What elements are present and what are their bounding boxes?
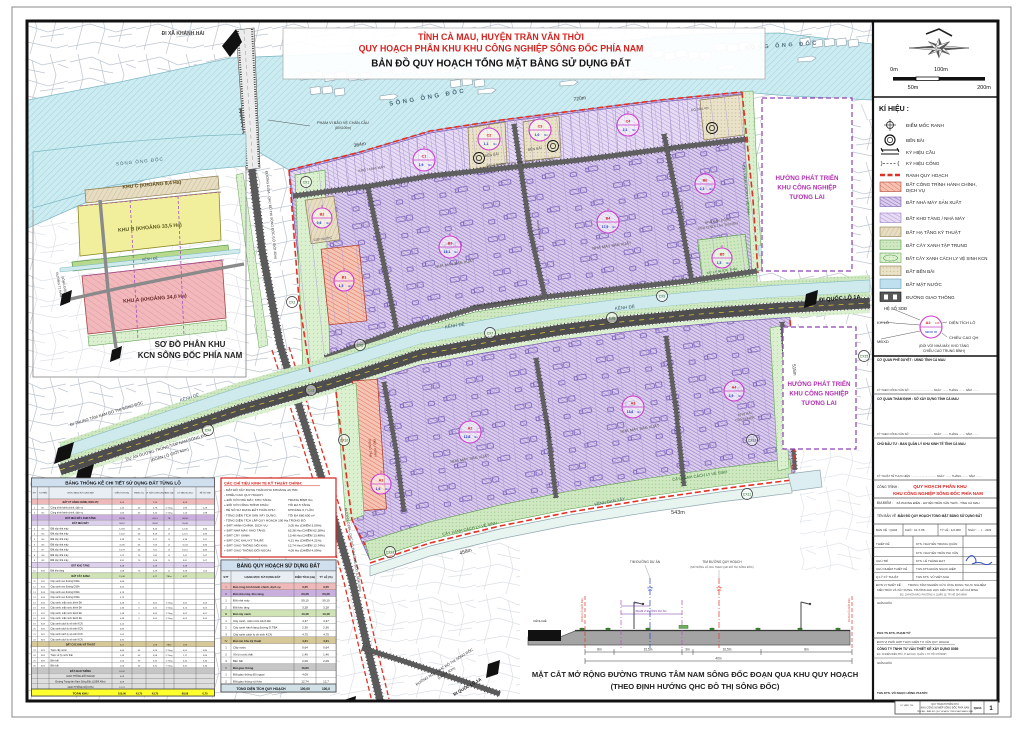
svg-text:KHU CÔNG NGHIỆP SÔNG ĐỐC PHÍA: KHU CÔNG NGHIỆP SÔNG ĐỐC PHÍA NAM [893,491,983,496]
svg-text:0,64: 0,64 [302,646,308,650]
svg-text:Cây xanh, mặt nước kênh Đê: Cây xanh, mặt nước kênh Đê [51,617,83,620]
svg-text:BẢNG QUY HOẠCH SỬ DỤNG ĐẤT: BẢNG QUY HOẠCH SỬ DỤNG ĐẤT [237,563,320,570]
svg-text:TỈNH CÀ MAU, HUYỆN TRẦN VĂN TH: TỈNH CÀ MAU, HUYỆN TRẦN VĂN THỜI [418,31,584,42]
svg-text:A1: A1 [379,479,384,483]
svg-text:TỔNG DIỆN TÍCH QUY HOẠCH: TỔNG DIỆN TÍCH QUY HOẠCH [236,686,286,691]
svg-text:1 Tầng: 1 Tầng [166,601,174,604]
svg-text:13,48: 13,48 [301,612,309,616]
svg-text:3m: 3m [685,648,690,652]
svg-text:KCN SÔNG ĐỐC PHÍA NAM: KCN SÔNG ĐỐC PHÍA NAM [138,350,243,360]
svg-text:TỶ LỆ : 1/2.000: TỶ LỆ : 1/2.000 [940,527,961,532]
svg-text:TOÀN KHU: TOÀN KHU [73,691,89,696]
svg-text:BẢN ĐỒ QUY HOẠCH TỔNG MẶT BẰNG: BẢN ĐỒ QUY HOẠCH TỔNG MẶT BẰNG SỬ DỤNG Đ… [371,58,630,70]
svg-text:TÊN BĐ : BẢN ĐỒ QUY HOẠCH TỔNG: TÊN BĐ : BẢN ĐỒ QUY HOẠCH TỔNG MẶT BẰNG … [917,710,974,713]
svg-text:1,9: 1,9 [419,163,424,167]
svg-text:3,9: 3,9 [729,394,734,398]
svg-text:B2: B2 [320,213,325,217]
svg-text:B5: B5 [720,253,725,257]
svg-text:17,9: 17,9 [602,225,609,229]
svg-text:13,48: 13,48 [119,576,125,578]
svg-text:Cây xanh hành lang đường D.TBA: Cây xanh hành lang đường D.TBA [233,626,278,630]
svg-text:CX11: CX11 [743,493,751,497]
svg-text:1,0: 1,0 [535,133,540,137]
svg-text:3,05: 3,05 [302,585,308,589]
svg-text:10,51: 10,51 [182,550,188,552]
svg-text:Đất xây nhà máy: Đất xây nhà máy [51,543,70,546]
svg-text:10,5m: 10,5m [723,648,732,652]
svg-text:KHU CÔNG NGHIỆP: KHU CÔNG NGHIỆP [777,184,836,192]
svg-text:STT: STT [223,575,229,579]
svg-text:1,6: 1,6 [376,487,381,491]
svg-text:Q.LÝ KỸ THUẬT: Q.LÝ KỸ THUẬT [876,574,899,579]
svg-text:0,64: 0,64 [323,646,329,650]
svg-text:CX3: CX3 [308,389,315,393]
svg-text:KÝ HIỆU TM:: KÝ HIỆU TM: [900,704,913,707]
svg-text:B3: B3 [448,242,453,246]
svg-text:3,8: 3,8 [935,321,940,325]
svg-text:16,02: 16,02 [119,671,125,673]
svg-text:KHU CÔNG NGHIỆP: KHU CÔNG NGHIỆP [789,390,848,398]
svg-text:+ ĐỐI VỚI NHÀ MÁY, KHO TÀNG:: + ĐỐI VỚI NHÀ MÁY, KHO TÀNG: [224,497,272,502]
svg-text:GIAO THÔNG NỘI KHU: GIAO THÔNG NỘI KHU [68,686,94,689]
svg-text:BẾN BÃI: BẾN BÃI [906,137,924,143]
svg-text:1,46: 1,46 [323,652,329,656]
svg-text:⚝: ⚝ [647,585,653,592]
svg-text:2,09: 2,09 [323,659,329,663]
svg-text:- TỔNG DIỆN TÍCH LẬP QUY HOẠCH: - TỔNG DIỆN TÍCH LẬP QUY HOẠCH 100 Ha TR… [224,517,307,522]
svg-text:ĐI XÃ KHÁNH HẢI: ĐI XÃ KHÁNH HẢI [162,30,205,37]
svg-text:TỶ LỆ (%): TỶ LỆ (%) [319,574,332,579]
svg-text:GIAO THÔNG ĐỐI NGOẠI: GIAO THÔNG ĐỐI NGOẠI [66,675,95,678]
svg-text:CX1: CX1 [303,181,310,185]
svg-text:9m: 9m [348,284,352,288]
svg-text:9m: 9m [544,133,548,137]
svg-text:III: III [225,612,228,616]
svg-text:CX7: CX7 [487,332,494,336]
svg-text:TB/m: TB/m [166,576,171,578]
svg-text:Đất giao thông nội khu: Đất giao thông nội khu [233,679,262,683]
svg-text:DỊCH VỤ: DỊCH VỤ [906,188,925,193]
svg-text:13,48 Ha (CHIẾM 13,48%): 13,48 Ha (CHIẾM 13,48%) [288,532,325,537]
svg-text:TB/m: TB/m [166,645,171,647]
svg-text:4,21 Ha (CHIẾM 4,21%): 4,21 Ha (CHIẾM 4,21%) [288,538,321,543]
svg-text:4,37: 4,37 [323,619,329,623]
svg-text:⚝: ⚝ [716,585,722,592]
svg-text:Đất xây nhà máy: Đất xây nhà máy [51,554,70,557]
svg-text:4,75: 4,75 [323,632,329,636]
svg-text:Đất xây nhà máy: Đất xây nhà máy [51,538,70,541]
svg-text:Trạm xử lý nước thải: Trạm xử lý nước thải [51,654,74,657]
svg-text:XÃ PHONG ĐIỀN - HUYỆN TRẦN VĂN: XÃ PHONG ĐIỀN - HUYỆN TRẦN VĂN THỜI - TỈ… [896,500,979,505]
svg-text:- HỆ SỐ SỬ DỤNG ĐẤT TOÀN KHU:: - HỆ SỐ SỬ DỤNG ĐẤT TOÀN KHU: [224,507,276,512]
svg-text:SƠ ĐỒ PHÂN KHU: SƠ ĐỒ PHÂN KHU [155,339,226,349]
svg-text:1,46: 1,46 [302,652,308,656]
svg-text:100m: 100m [934,67,948,73]
svg-text:1 Tầng: 1 Tầng [166,607,174,610]
svg-text:(THEO ĐỊNH HƯỚNG QHC ĐÔ THỊ SÔ: (THEO ĐỊNH HƯỚNG QHC ĐÔ THỊ SÔNG ĐỐC) [611,681,780,691]
svg-text:CHỨC NĂNG SỬ DỤNG ĐẤT: CHỨC NĂNG SỬ DỤNG ĐẤT [67,492,95,495]
svg-text:QH04: QH04 [974,706,982,710]
svg-text:KTS. NGUYỄN TRUNG QUÂN: KTS. NGUYỄN TRUNG QUÂN [916,541,957,546]
svg-text:200m: 200m [977,85,991,91]
svg-text:CHIỀU CAO QH: CHIỀU CAO QH [949,335,978,340]
svg-text:9m: 9m [738,394,742,398]
svg-text:16,83: 16,83 [301,666,309,670]
svg-text:- CHIỀU CAO QUY HOẠCH:: - CHIỀU CAO QUY HOẠCH: [224,492,264,497]
svg-text:2 Tầng: 2 Tầng [166,654,174,657]
svg-text:Bến bãi: Bến bãi [51,665,60,668]
svg-text:RANH QUY HOẠCH: RANH QUY HOẠCH [906,173,948,178]
svg-text:HƯỚNG PHÁT TRIỂN: HƯỚNG PHÁT TRIỂN [787,380,851,388]
svg-text:3,28: 3,28 [323,605,329,609]
svg-text:KÝ HIỆU CẦU: KÝ HIỆU CẦU [906,148,935,155]
svg-text:KÊNH ĐÊ: KÊNH ĐÊ [533,618,546,623]
svg-text:9m: 9m [637,410,641,414]
svg-text:13,22: 13,22 [119,534,125,536]
svg-text:12,8: 12,8 [464,435,471,439]
svg-text:0m: 0m [890,67,898,73]
svg-text:- MẬT ĐỘ XÂY DỰNG TOÀN KHU KHO: - MẬT ĐỘ XÂY DỰNG TOÀN KHU KHOẢNG 43,75% [224,487,298,492]
svg-text:8m: 8m [597,648,602,652]
svg-text:100,0: 100,0 [322,687,330,691]
svg-text:QUY HOẠCH PHÂN KHU KHU CÔNG NG: QUY HOẠCH PHÂN KHU KHU CÔNG NGHIỆP SÔNG … [359,43,644,54]
svg-text:2 Tầng: 2 Tầng [166,649,174,652]
svg-text:C1: C1 [422,155,427,159]
svg-text:ĐẤT CT HÀNH CHÍNH, DỊCH VỤ: ĐẤT CT HÀNH CHÍNH, DỊCH VỤ [63,501,99,504]
svg-text:II: II [225,592,227,596]
svg-text:ĐẤT NHÀ MÁY SẢN XUẤT: ĐẤT NHÀ MÁY SẢN XUẤT [906,199,962,205]
svg-text:+ ĐẤT CÁC KHU KỸ THUẬT:: + ĐẤT CÁC KHU KỸ THUẬT: [224,538,264,543]
svg-text:Công trình hành chính, dịch vụ: Công trình hành chính, dịch vụ [51,512,84,515]
svg-text:KÝ HIỆU CỐNG: KÝ HIỆU CỐNG [906,159,940,166]
svg-text:TỐI ĐA 680.600 m²: TỐI ĐA 680.600 m² [288,512,315,517]
svg-text:B1: B1 [342,276,347,280]
svg-text:59,10: 59,10 [119,523,125,525]
svg-text:+ ĐẤT HÀNH CHÍNH, DỊCH VỤ:: + ĐẤT HÀNH CHÍNH, DỊCH VỤ: [224,523,269,527]
svg-text:63,38: 63,38 [301,592,309,596]
svg-text:KÝ HIỆU: KÝ HIỆU [39,492,48,495]
svg-text:ĐẤT GIAO THÔNG: ĐẤT GIAO THÔNG [70,670,91,673]
svg-text:THS.KTS ĐOÀN NGỌC HIỆP: THS.KTS ĐOÀN NGỌC HIỆP [916,566,956,571]
svg-text:12,84: 12,84 [119,528,125,530]
svg-text:TẦNG CAO: TẦNG CAO [164,492,175,495]
svg-text:A2: A2 [468,427,473,431]
svg-text:Đất cây xanh: Đất cây xanh [233,612,251,616]
svg-text:Công trình hành chính, dịch vụ: Công trình hành chính, dịch vụ [51,506,84,509]
svg-text:CX2: CX2 [289,301,296,305]
svg-text:KIẾN TRÚC VÀ XÂY DỰNG- TRƯỜNG: KIẾN TRÚC VÀ XÂY DỰNG- TRƯỜNG ĐẠI HỌC KI… [877,587,978,592]
svg-text:2 Tầng: 2 Tầng [166,512,174,515]
svg-text:Cây xanh ven đường D19A: Cây xanh ven đường D19A [51,596,80,599]
svg-text:1 Tầng: 1 Tầng [166,612,174,615]
svg-text:CÔNG TRÌNH :: CÔNG TRÌNH : [877,484,899,489]
svg-text:8m: 8m [804,648,809,652]
svg-text:GIÁM ĐỐC: GIÁM ĐỐC [877,660,893,665]
svg-text:3,05: 3,05 [323,585,329,589]
svg-text:THS.KTS. VÕ NGỌC HỒNG PHƯỚC: THS.KTS. VÕ NGỌC HỒNG PHƯỚC [877,690,929,695]
svg-text:CHỦ ĐẦU TƯ : BAN QUẢN LÝ KHU K: CHỦ ĐẦU TƯ : BAN QUẢN LÝ KHU KINH TẾ TỈN… [877,441,966,446]
svg-text:TIM ĐƯỜNG QUY HOẠCH: TIM ĐƯỜNG QUY HOẠCH [702,559,742,564]
svg-text:9m: 9m [632,128,636,132]
svg-text:4,21: 4,21 [302,639,308,643]
svg-text:Đất nhà máy, kho tàng: Đất nhà máy, kho tàng [233,592,264,596]
svg-text:ĐẤT CÁC KHU KỸ THUẬT: ĐẤT CÁC KHU KỸ THUẬT [66,644,96,647]
svg-text:CX4: CX4 [205,429,212,433]
svg-text:13,6: 13,6 [627,410,634,414]
svg-text:0,70: 0,70 [202,692,208,696]
svg-text:CÁC CHỈ TIÊU KINH TẾ KỸ THUẬT: CÁC CHỈ TIÊU KINH TẾ KỸ THUẬT CHÍNH: [224,481,302,486]
svg-text:C3: C3 [538,125,543,129]
svg-text:39,84: 39,84 [152,523,158,525]
svg-text:40m: 40m [715,657,722,661]
svg-text:HẠNG MỤC SỬ DỤNG ĐẤT: HẠNG MỤC SỬ DỤNG ĐẤT [245,574,281,579]
svg-text:+ ĐỐI VỚI CÔNG TRÌNH KHÁC:: + ĐỐI VỚI CÔNG TRÌNH KHÁC: [224,502,269,507]
svg-text:QUY HOẠCH PHÂN KHU: QUY HOẠCH PHÂN KHU [913,483,967,489]
svg-text:ĐIỂM MỐC RANH: ĐIỂM MỐC RANH [906,122,944,128]
svg-text:59,10: 59,10 [322,599,330,603]
svg-text:Cây xanh cách ly vệ sinh KCN: Cây xanh cách ly vệ sinh KCN [51,633,83,636]
svg-text:A2: A2 [925,320,931,325]
svg-text:59,10: 59,10 [301,599,309,603]
svg-text:6m: 6m [633,601,638,605]
svg-text:ĐẤT KHO TÀNG: ĐẤT KHO TÀNG [71,564,89,567]
svg-text:Đường Trung tâm Nam Sông Đốc (: Đường Trung tâm Nam Sông Đốc (LGĐK 40m) [56,681,106,684]
svg-text:43,75: 43,75 [152,692,159,696]
svg-text:DIỆN TÍCH (Ha): DIỆN TÍCH (Ha) [115,492,130,495]
svg-text:(ĐỐI VỚI NHÀ MÁY, KHO TÀNG: (ĐỐI VỚI NHÀ MÁY, KHO TÀNG [919,343,969,348]
svg-text:4,75: 4,75 [302,632,308,636]
svg-text:PHẠM VI BẢO VỆ CHÂN CẦU: PHẠM VI BẢO VỆ CHÂN CẦU [317,120,369,125]
svg-text:CƠ QUAN THẨM ĐỊNH : SỞ XÂY DỰN: CƠ QUAN THẨM ĐỊNH : SỞ XÂY DỰNG TỈNH CÀ … [877,396,959,401]
svg-text:Đất các khu kỹ thuật: Đất các khu kỹ thuật [233,639,261,643]
svg-text:MẶT CẮT MỞ RỘNG ĐƯỜNG TRUNG TÂ: MẶT CẮT MỞ RỘNG ĐƯỜNG TRUNG TÂM NAM SÔNG… [532,669,858,679]
svg-text:2,1: 2,1 [623,128,628,132]
svg-text:55,08: 55,08 [182,523,188,525]
svg-text:ĐC: 134 HÒA HẢO, PHƯỜNG 4, QUẬ: ĐC: 134 HÒA HẢO, PHƯỜNG 4, QUẬN 10, TP. … [900,594,967,597]
svg-text:ĐƠN VỊ THIẾT KẾ :: ĐƠN VỊ THIẾT KẾ : [876,582,903,587]
svg-text:4,21: 4,21 [323,639,329,643]
svg-text:1,1: 1,1 [484,142,489,146]
svg-text:Cây xanh ven đường D19A: Cây xanh ven đường D19A [51,586,80,589]
svg-text:KH LÔ: KH LÔ [877,320,889,325]
svg-text:Cây xanh cách ly vệ sinh KCN: Cây xanh cách ly vệ sinh KCN [51,638,83,641]
svg-text:HƯỚNG PHÁT TRIỂN: HƯỚNG PHÁT TRIỂN [775,174,839,182]
svg-text:Đất xây nhà máy: Đất xây nhà máy [51,527,70,530]
svg-text:ĐẤT NHÀ MÁY: ĐẤT NHÀ MÁY [72,522,89,525]
svg-text:1 Tầng: 1 Tầng [166,617,174,620]
svg-text:CHỦ TRÌ: CHỦ TRÌ [876,558,888,563]
svg-text:ĐẤT HẠ TẦNG KỸ THUẬT: ĐẤT HẠ TẦNG KỸ THUẬT [906,229,961,235]
svg-text:11,85: 11,85 [119,544,125,546]
svg-text:CX13: CX13 [386,551,395,555]
svg-text:MĐXD (%): MĐXD (%) [134,493,144,495]
svg-text:IV: IV [225,639,228,643]
svg-text:68,06: 68,06 [182,692,189,696]
svg-text:CX12: CX12 [748,439,757,443]
svg-text:16,1: 16,1 [444,250,451,254]
svg-text:9m: 9m [709,187,713,191]
svg-text:Bến bãi: Bến bãi [51,659,60,662]
svg-text:KHU CÔNG NGHIỆP SÔNG ĐỐC PHÍA: KHU CÔNG NGHIỆP SÔNG ĐỐC PHÍA NAM [921,707,969,710]
svg-text:ĐẤT KHO TÀNG / NHÀ MÁY: ĐẤT KHO TÀNG / NHÀ MÁY [906,215,965,221]
svg-text:9m: 9m [428,163,432,167]
svg-text:0,6: 0,6 [317,221,322,225]
svg-text:NGÀY : ....I.... 2023: NGÀY : ....I.... 2023 [968,528,992,532]
svg-text:12,74 Ha (CHIẾM 12,74%): 12,74 Ha (CHIẾM 12,74%) [288,543,325,548]
svg-text:Cấp nước: Cấp nước [233,646,247,650]
svg-text:12,21: 12,21 [182,534,188,536]
svg-text:- TỔNG DIỆN TÍCH SÀN XÂY DỰNG:: - TỔNG DIỆN TÍCH SÀN XÂY DỰNG: [224,512,277,517]
svg-text:+ ĐẤT NHÀ MÁY, KHO TÀNG:: + ĐẤT NHÀ MÁY, KHO TÀNG: [224,528,266,532]
svg-text:1 Tầng: 1 Tầng [166,665,174,668]
svg-text:THIẾT KẾ: THIẾT KẾ [876,541,889,546]
svg-text:+ ĐẤT GIAO THÔNG NỘI KHU:: + ĐẤT GIAO THÔNG NỘI KHU: [224,543,268,548]
svg-text:Đất giao thông đối ngoại: Đất giao thông đối ngoại [233,673,265,677]
svg-text:CX10: CX10 [340,439,349,443]
svg-text:Cây xanh ven đường D19A: Cây xanh ven đường D19A [51,580,80,583]
svg-text:100,00: 100,00 [118,692,126,696]
svg-text:43,75: 43,75 [136,692,143,696]
svg-text:2,36: 2,36 [323,626,329,630]
svg-text:9m: 9m [474,435,478,439]
svg-text:KTS. NGUYỄN TRẦN PHI VÂN: KTS. NGUYỄN TRẦN PHI VÂN [916,550,958,555]
svg-text:Cây xanh, mặt nước kênh Đê: Cây xanh, mặt nước kênh Đê [51,601,83,604]
svg-text:CHỦ NHIỆM THIẾT KẾ: CHỦ NHIỆM THIẾT KẾ [876,566,907,571]
svg-text:543m: 543m [671,510,685,516]
svg-text:12,74: 12,74 [301,679,309,683]
svg-text:ĐẤT CÂY XANH CÁCH LY VỆ SINH K: ĐẤT CÂY XANH CÁCH LY VỆ SINH KCN [906,256,987,261]
svg-text:63,38: 63,38 [322,592,330,596]
svg-text:CX15: CX15 [860,355,869,359]
svg-text:43,15: 43,15 [152,518,158,520]
svg-text:1,5: 1,5 [717,261,722,265]
svg-text:HỆ SỐ SDĐ: HỆ SỐ SDĐ [200,492,212,495]
svg-text:CX8: CX8 [609,317,616,321]
svg-text:C2: C2 [487,134,492,138]
svg-text:MĐXD 65: MĐXD 65 [925,330,938,334]
svg-text:ĐẤT CÂY XANH TẬP TRUNG: ĐẤT CÂY XANH TẬP TRUNG [906,242,968,248]
svg-text:GIÁM ĐỐC: GIÁM ĐỐC [877,600,893,605]
svg-text:DT SÀN XD (Ha): DT SÀN XD (Ha) [177,492,192,495]
svg-text:KTS. LÊ THÀNH ĐẠT: KTS. LÊ THÀNH ĐẠT [916,558,945,563]
svg-text:ĐC: 28 ĐIỆN BIÊN PHỦ, P. ĐA KA: ĐC: 28 ĐIỆN BIÊN PHỦ, P. ĐA KAO, QUẬN 1,… [877,653,947,656]
svg-text:B6: B6 [703,179,708,183]
svg-text:9m: 9m [326,221,330,225]
svg-text:Đất xây nhà máy: Đất xây nhà máy [51,549,70,552]
svg-text:9m: 9m [493,142,497,146]
svg-text:2,3: 2,3 [700,187,705,191]
svg-text:11,34: 11,34 [182,544,188,546]
svg-text:ĐẤT NHÀ MÁY, KHO TÀNG: ĐẤT NHÀ MÁY, KHO TÀNG [65,517,96,520]
svg-text:ĐƯỜNG GIAO THÔNG: ĐƯỜNG GIAO THÔNG [906,294,955,300]
svg-text:CƠ QUAN PHÊ DUYỆT : UBND TỈNH: CƠ QUAN PHÊ DUYỆT : UBND TỈNH CÀ MAU [877,357,946,362]
svg-text:1,5: 1,5 [339,284,344,288]
svg-text:12,7: 12,7 [323,679,329,683]
svg-text:Đất kho tàng: Đất kho tàng [233,605,250,609]
svg-text:DT XÂY DỰNG (Ha): DT XÂY DỰNG (Ha) [146,492,165,495]
svg-text:9m: 9m [726,261,730,265]
svg-text:58,58: 58,58 [182,518,188,520]
svg-text:Đất xây nhà máy: Đất xây nhà máy [51,533,70,536]
svg-text:V: V [225,666,227,670]
svg-text:Bến bãi: Bến bãi [233,659,243,663]
svg-text:A3: A3 [631,402,636,406]
svg-text:1 Tầng: 1 Tầng [166,659,174,662]
svg-text:ĐẤT CÂY XANH: ĐẤT CÂY XANH [71,575,89,578]
svg-text:TƯƠNG LAI: TƯƠNG LAI [789,194,824,201]
svg-text:12,45: 12,45 [182,528,188,530]
svg-text:TRUNG TÂM NGHIÊN CỨU ỨNG DỤNG: TRUNG TÂM NGHIÊN CỨU ỨNG DỤNG THỰC NGHIỆ… [908,582,986,587]
svg-text:BẢNG THỐNG KÊ CHI TIẾT SỬ DỤNG: BẢNG THỐNG KÊ CHI TIẾT SỬ DỤNG ĐẤT TỪNG … [65,479,181,486]
svg-text:CX9: CX9 [659,295,666,299]
svg-text:2,09: 2,09 [302,659,308,663]
svg-text:Cây xanh cách ly vệ sinh KCN: Cây xanh cách ly vệ sinh KCN [51,622,83,625]
svg-text:ĐẤT BẾN BÃI: ĐẤT BẾN BÃI [906,268,935,274]
svg-text:Cây xanh, mặt nước kênh Đê: Cây xanh, mặt nước kênh Đê [51,612,83,615]
svg-text:Đất kho tàng: Đất kho tàng [51,570,65,573]
svg-text:Cây xanh cách ly vệ sinh KCN: Cây xanh cách ly vệ sinh KCN [51,628,83,631]
svg-text:TIM ĐƯỜNG DỰ ÁN: TIM ĐƯỜNG DỰ ÁN [630,559,661,564]
svg-text:CÔNG TY TNHH TƯ VẤN THIẾT KẾ X: CÔNG TY TNHH TƯ VẤN THIẾT KẾ XÂY DỰNG 80… [877,646,959,651]
svg-text:12,74: 12,74 [119,687,125,689]
svg-text:TRUNG BÌNH 9m: TRUNG BÌNH 9m [288,498,313,502]
svg-text:TƯƠNG LAI: TƯƠNG LAI [801,400,836,407]
svg-text:Cây xanh, mặt nước kênh Đê: Cây xanh, mặt nước kênh Đê [51,607,83,610]
svg-text:Cây xanh ven đường D19A: Cây xanh ven đường D19A [51,591,80,594]
svg-text:+ ĐẤT GIAO THÔNG ĐỐI NGOẠI:: + ĐẤT GIAO THÔNG ĐỐI NGOẠI: [224,548,272,553]
svg-text:(80X100m): (80X100m) [335,126,351,130]
svg-text:+ ĐẤT CÂY XANH:: + ĐẤT CÂY XANH: [224,533,250,537]
svg-text:Cây xanh, mặt nước kênh Đê: Cây xanh, mặt nước kênh Đê [233,619,271,623]
svg-text:2 Tầng: 2 Tầng [166,506,174,509]
svg-text:DIỆN TÍCH (Ha): DIỆN TÍCH (Ha) [295,574,315,579]
svg-text:2,36: 2,36 [302,626,308,630]
svg-text:62,38 Ha (CHIẾM 62,38%): 62,38 Ha (CHIẾM 62,38%) [288,527,325,532]
svg-text:Đất công trình hành chính, dịc: Đất công trình hành chính, dịch vụ [233,585,281,589]
svg-text:Cây xanh cách ly vệ sinh KCN: Cây xanh cách ly vệ sinh KCN [233,632,272,636]
svg-text:ĐƠN VỊ PHỐI HỢP THỰC HIỆN TƯ V: ĐƠN VỊ PHỐI HỢP THỰC HIỆN TƯ VẤN QUY HOẠ… [877,639,949,644]
svg-text:DIỆN TÍCH LÔ: DIỆN TÍCH LÔ [949,320,975,325]
svg-text:Xử lý nước thải: Xử lý nước thải [233,652,253,656]
svg-text:10,78: 10,78 [119,550,125,552]
svg-text:9m: 9m [612,225,616,229]
svg-text:Trạm cấp nước: Trạm cấp nước [51,649,68,652]
svg-text:ĐẤT CÔNG TRÌNH HÀNH CHÍNH,: ĐẤT CÔNG TRÌNH HÀNH CHÍNH, [906,181,977,187]
svg-text:KÍ HIỆU :: KÍ HIỆU : [879,104,909,113]
svg-text:KHOẢNG 0,7 LẦN: KHOẢNG 0,7 LẦN [288,507,313,512]
svg-text:4,09: 4,09 [302,673,308,677]
svg-text:ĐỊA ĐIỂM :: ĐỊA ĐIỂM : [877,500,893,505]
svg-text:BẢN ĐỒ QUY HOẠCH TỔNG MẶT BẰNG: BẢN ĐỒ QUY HOẠCH TỔNG MẶT BẰNG SỬ DỤNG Đ… [898,513,982,518]
svg-text:3,05 Ha (CHIẾM 3,05%): 3,05 Ha (CHIẾM 3,05%) [288,522,321,527]
svg-text:100,00: 100,00 [300,687,310,691]
svg-text:TÊN BẢN VẼ :: TÊN BẢN VẼ : [877,513,898,518]
svg-text:10,5m: 10,5m [644,648,653,652]
svg-text:THS.KTS. VŨ VIỆT ANH: THS.KTS. VŨ VIỆT ANH [916,574,949,579]
svg-text:62,38: 62,38 [119,518,125,520]
svg-text:4,09 Ha (CHIẾM 4,09%): 4,09 Ha (CHIẾM 4,09%) [288,548,321,553]
svg-text:9m: 9m [454,250,458,254]
svg-text:BẢN VẼ : QH04: BẢN VẼ : QH04 [876,527,898,532]
svg-text:MĐXD: MĐXD [877,339,889,344]
svg-text:3,28: 3,28 [302,605,308,609]
svg-text:4,37: 4,37 [302,619,308,623]
svg-text:ĐẤT MẶT NƯỚC: ĐẤT MẶT NƯỚC [906,281,942,287]
svg-text:50m: 50m [908,85,919,91]
svg-text:Đất nhà máy: Đất nhà máy [233,599,250,603]
svg-text:9m: 9m [385,487,389,491]
svg-text:Đất xây nhà máy: Đất xây nhà máy [51,559,70,562]
